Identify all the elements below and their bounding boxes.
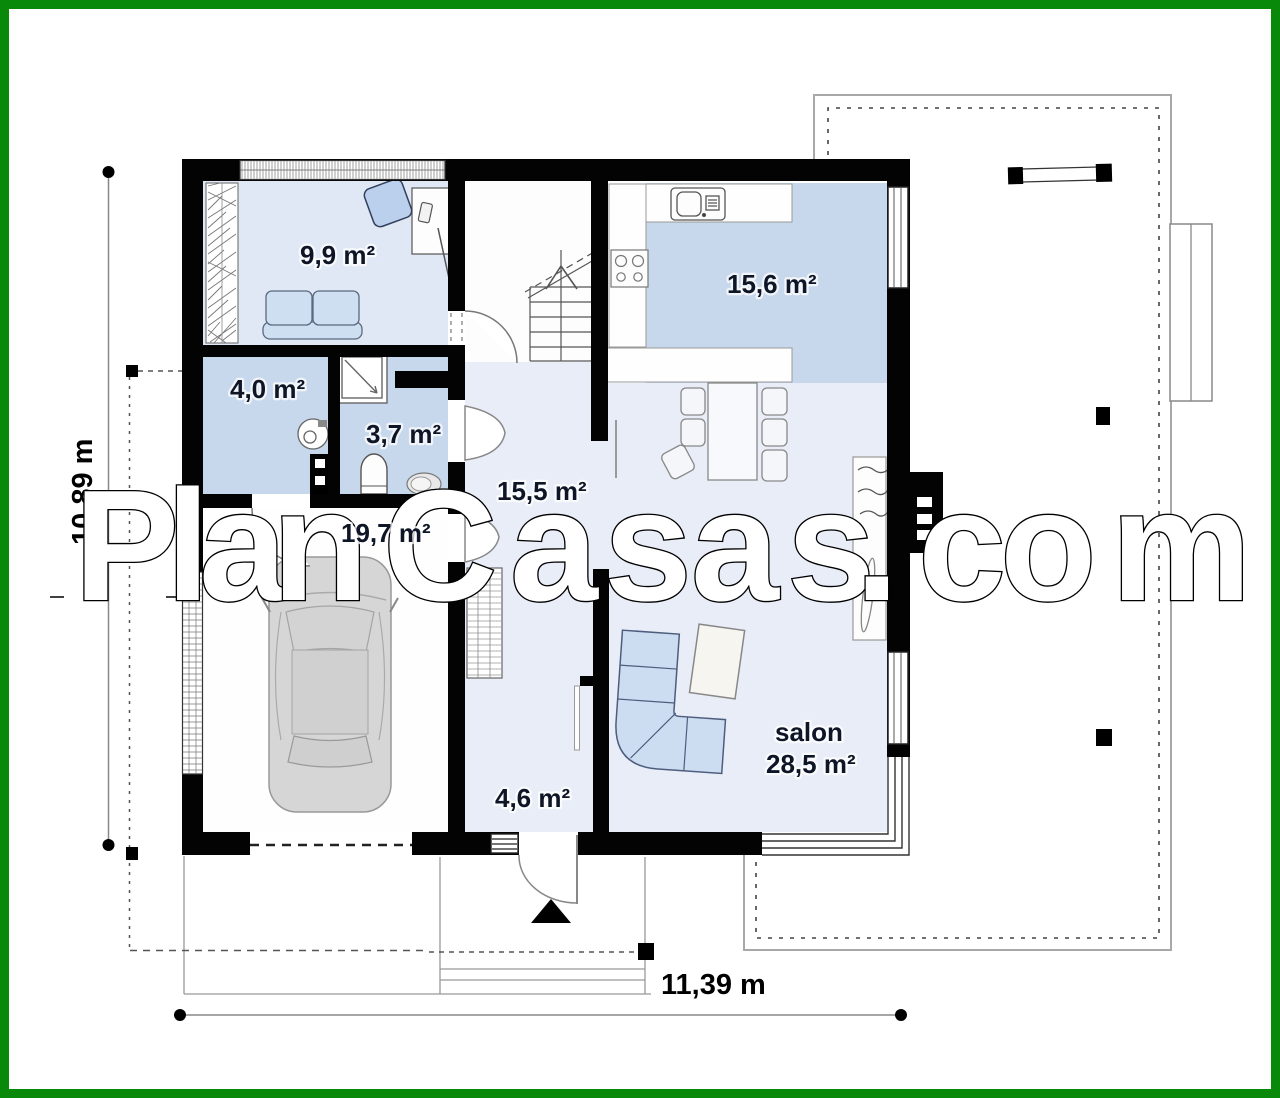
svg-text:4,0 m²: 4,0 m² <box>230 374 305 404</box>
svg-text:9,9 m²: 9,9 m² <box>300 240 375 270</box>
svg-text:19,7 m²: 19,7 m² <box>341 518 431 548</box>
svg-text:salon: salon <box>775 717 843 747</box>
svg-text:4,6 m²: 4,6 m² <box>495 783 570 813</box>
svg-text:11,39 m: 11,39 m <box>661 969 766 1001</box>
svg-text:15,6 m²: 15,6 m² <box>727 269 817 299</box>
svg-text:3,7 m²: 3,7 m² <box>366 419 441 449</box>
svg-text:PlanCasas.com: PlanCasas.com <box>74 458 1252 634</box>
svg-text:28,5 m²: 28,5 m² <box>766 749 856 779</box>
svg-text:15,5 m²: 15,5 m² <box>497 476 587 506</box>
